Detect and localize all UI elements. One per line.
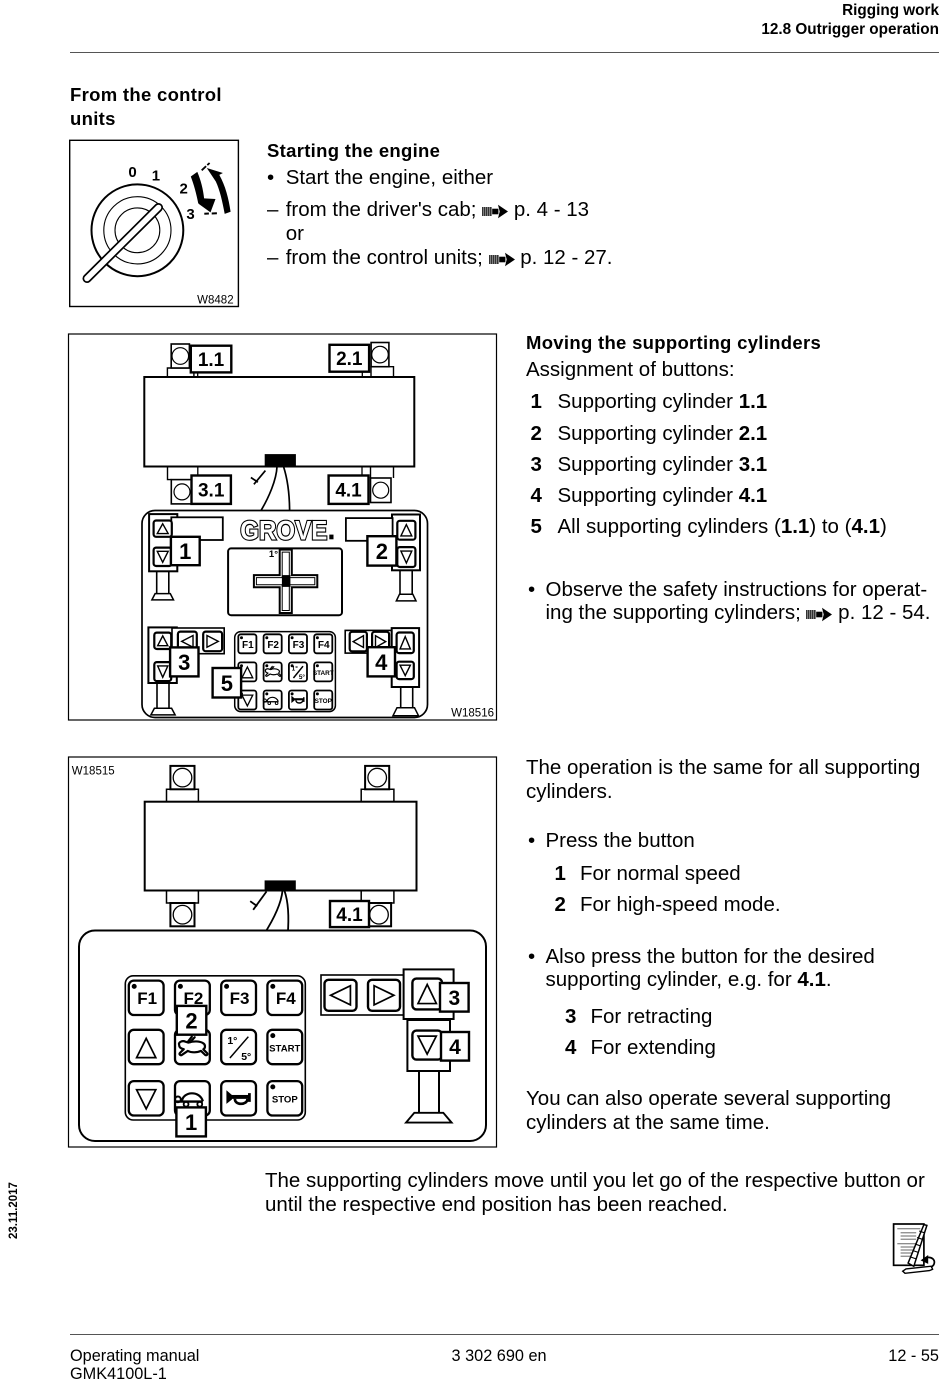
svg-text:1°: 1° — [227, 1035, 237, 1047]
svg-text:F4: F4 — [318, 640, 330, 651]
svg-text:F3: F3 — [230, 989, 250, 1008]
svg-text:W18516: W18516 — [451, 708, 494, 720]
svg-text:F3: F3 — [293, 640, 305, 651]
svg-text:STOP: STOP — [272, 1095, 299, 1106]
svg-text:4.1: 4.1 — [335, 481, 362, 502]
svg-text:2: 2 — [180, 180, 188, 197]
svg-text:F1: F1 — [137, 989, 157, 1008]
svg-text:W18515: W18515 — [72, 766, 115, 778]
svg-text:4: 4 — [375, 650, 388, 675]
svg-text:4: 4 — [449, 1036, 461, 1059]
svg-text:5°: 5° — [299, 673, 306, 681]
svg-text:F1: F1 — [242, 640, 254, 651]
svg-text:1°: 1° — [269, 549, 278, 560]
svg-text:1°: 1° — [292, 664, 299, 672]
svg-text:0: 0 — [128, 164, 136, 181]
svg-text:START: START — [269, 1043, 300, 1054]
svg-text:1.1: 1.1 — [198, 350, 225, 371]
svg-text:5: 5 — [221, 671, 233, 696]
svg-text:STOP: STOP — [315, 698, 333, 705]
svg-text:3: 3 — [448, 987, 460, 1010]
svg-text:1: 1 — [179, 539, 191, 564]
svg-text:F2: F2 — [267, 640, 279, 651]
svg-text:GROVE: GROVE — [240, 515, 327, 545]
svg-text:1: 1 — [152, 167, 160, 184]
svg-text:3.1: 3.1 — [198, 481, 225, 502]
svg-text:5°: 5° — [241, 1051, 251, 1063]
svg-text:2: 2 — [376, 539, 388, 564]
svg-text:2: 2 — [185, 1008, 197, 1033]
svg-text:W8482: W8482 — [197, 295, 233, 307]
svg-text:2.1: 2.1 — [336, 349, 363, 370]
svg-text:START: START — [313, 670, 334, 677]
svg-text:3: 3 — [178, 650, 190, 675]
svg-text:1: 1 — [185, 1110, 197, 1135]
svg-text:4.1: 4.1 — [336, 905, 363, 926]
svg-text:3: 3 — [186, 206, 194, 223]
svg-text:F4: F4 — [276, 989, 296, 1008]
